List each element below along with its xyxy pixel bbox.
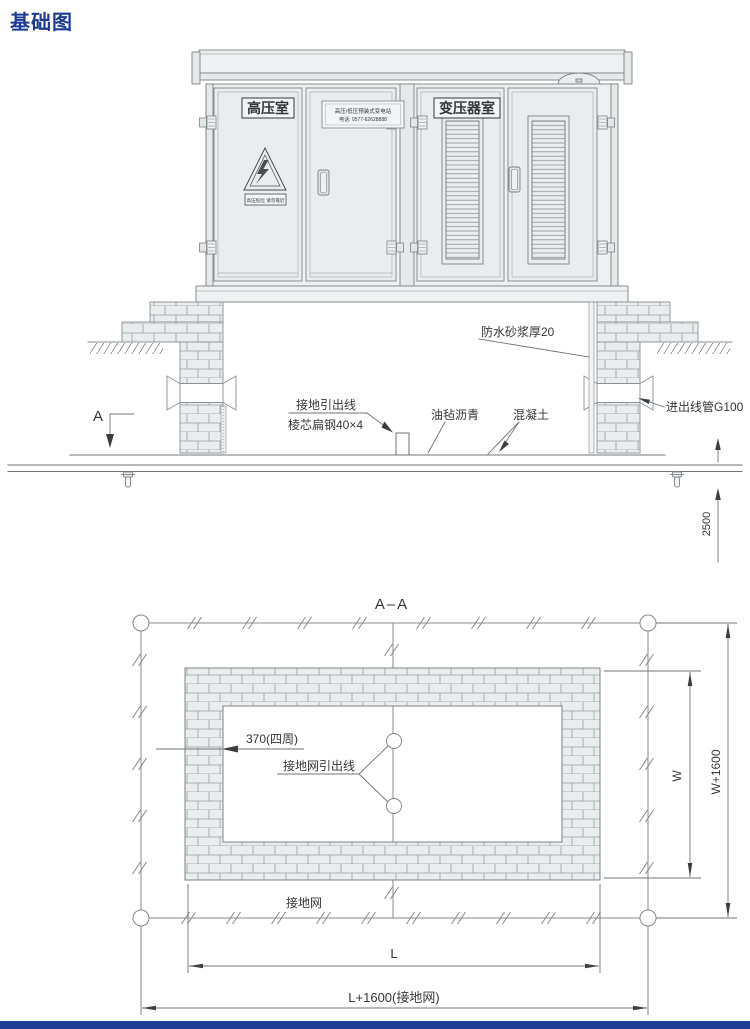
grid-corner-node: [640, 910, 656, 926]
ventilation-louver-2: [528, 116, 569, 264]
plan-view: A–A: [133, 596, 738, 1015]
hv-room-plate: 高压室: [242, 98, 294, 118]
nameplate: 高压/低压预装式变电站 电话: 0577-62628888: [322, 101, 404, 128]
waterproof-mortar-layer: [589, 302, 594, 453]
conduit-flare: [223, 376, 236, 410]
substation-roof: [192, 50, 632, 84]
foundation-pillar-left: [122, 302, 236, 453]
flat-steel-label: 棱芯扁钢40×4: [288, 417, 363, 432]
waterproof-mortar-label: 防水砂浆厚20: [481, 324, 555, 339]
transformer-room-label: 变压器室: [439, 100, 495, 116]
callout-ground-lead: 接地引出线 棱芯扁钢40×4: [288, 397, 393, 433]
transformer-room-plate: 变压器室: [434, 98, 500, 118]
hinge-icon: [200, 116, 217, 129]
cabinet-base-frame: [196, 286, 628, 302]
conduit-flare: [167, 376, 180, 410]
callout-wall-thickness: 370(四周): [156, 732, 304, 753]
grid-corner-node: [640, 615, 656, 631]
foundation-pillar-right: [584, 302, 698, 453]
ground-grid-label: 接地网: [286, 895, 322, 910]
elevation-view: 高压室 变压器室 高压/低压预装式变电站 电话: 0577-62628888 高…: [8, 50, 744, 562]
footer-accent-bar: [0, 1021, 750, 1029]
grid-lead-node: [387, 734, 402, 749]
door-handle-left: [318, 170, 329, 195]
mortar-strip: [221, 406, 226, 453]
grid-lead-node: [387, 799, 402, 814]
callout-asphalt-felt: 油毡沥青: [428, 408, 479, 453]
section-cut-marker: A: [93, 408, 134, 448]
ground-anchor: [671, 472, 684, 487]
grid-corner-node: [133, 615, 149, 631]
dim-w1600-label: W+1600: [709, 749, 723, 794]
dim-w-label: W: [670, 770, 684, 782]
door-handle-right: [509, 167, 520, 192]
grid-corner-node: [133, 910, 149, 926]
callout-conduit: 进出线管G100: [638, 398, 744, 414]
warning-plate-text: 高压危险 请勿靠近: [246, 197, 284, 204]
nameplate-line2: 电话: 0577-62628888: [339, 116, 387, 123]
hinge-icon: [598, 116, 615, 129]
wall-thickness-label: 370(四周): [246, 732, 298, 746]
foundation-drawing: 高压室 变压器室 高压/低压预装式变电站 电话: 0577-62628888 高…: [0, 0, 750, 1029]
plan-title: A–A: [375, 596, 409, 613]
ground-lead-label: 接地引出线: [296, 397, 356, 412]
hv-room-label: 高压室: [247, 100, 289, 116]
hinge-icon: [387, 241, 404, 254]
callout-waterproof-mortar: 防水砂浆厚20: [479, 324, 589, 357]
depth-dimension-label: 2500: [701, 512, 713, 536]
concrete-label: 混凝土: [513, 407, 549, 422]
conduit-label: 进出线管G100: [666, 399, 744, 414]
hinge-icon: [200, 241, 217, 254]
section-marker-label: A: [93, 408, 103, 425]
depth-dimension: 2500: [701, 438, 721, 562]
conduit-flare: [640, 376, 653, 410]
ground-lead-pipe: [396, 433, 409, 455]
hinge-icon: [598, 241, 615, 254]
grid-lead-label: 接地网引出线: [283, 758, 355, 773]
asphalt-felt-label: 油毡沥青: [431, 408, 479, 422]
foundation-drawing-page: 基础图: [0, 0, 750, 1029]
hinge-icon: [411, 116, 428, 129]
dim-l-label: L: [390, 946, 397, 961]
hinge-icon: [411, 241, 428, 254]
callout-concrete: 混凝土: [488, 407, 549, 454]
nameplate-line1: 高压/低压预装式变电站: [335, 107, 392, 115]
dim-l1600-label: L+1600(接地网): [348, 990, 439, 1005]
ventilation-louver-1: [442, 116, 483, 264]
ground-anchor: [122, 472, 135, 487]
